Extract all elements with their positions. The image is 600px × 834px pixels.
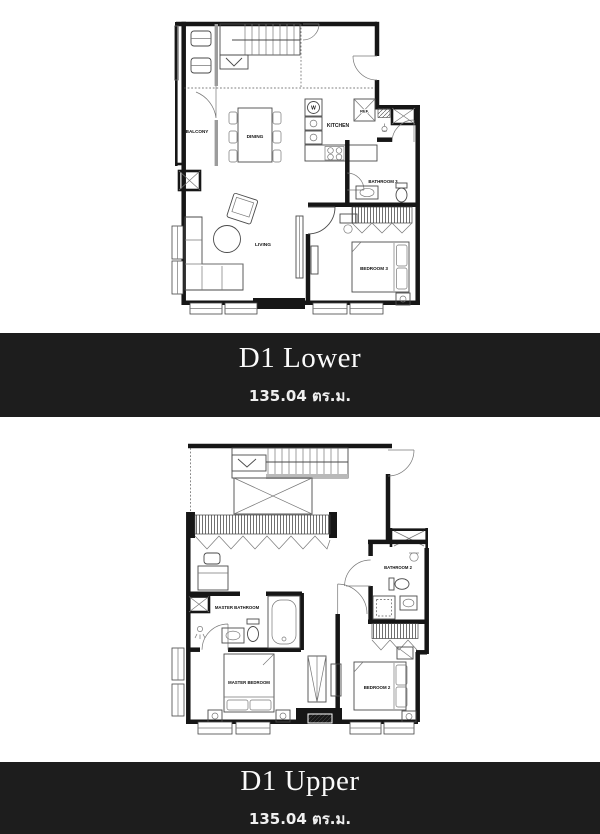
sink [222,628,244,643]
balcony-glass-wall [215,24,218,86]
banner-lower: D1 Lower 135.04 ตร.ม. [0,333,600,417]
living: LIVING [179,171,303,290]
master-bedroom-label: MASTER BEDROOM [228,680,270,685]
wardrobe-hangers [195,536,330,549]
desk-chair [344,225,352,233]
landing-door [388,450,414,476]
pillow [396,687,407,707]
kitchen-door [353,56,377,80]
floorplan-lower: BALCONY DINING W [165,10,427,322]
entry-threshold [378,109,390,118]
kitchen-sink [305,117,322,130]
coffee-table [214,226,241,253]
toilet [247,619,259,624]
stair-direction-arrow [226,58,242,66]
washer-label: W [311,106,316,112]
master-bathroom: MASTER BATHROOM [188,593,302,650]
pillow [397,245,408,266]
dining-label: DINING [247,134,264,140]
pillow [227,700,248,710]
plan-area: 135.04 ตร.ม. [249,807,351,831]
banner-upper: D1 Upper 135.04 ตร.ม. [0,762,600,834]
kitchen-label: KITCHEN [327,123,350,129]
bedroom3: BEDROOM 3 [308,207,412,305]
ref-label: REF. [360,109,369,114]
bathtub [268,596,300,648]
bedroom2-label: BEDROOM 2 [364,685,391,690]
wardrobe [352,207,412,223]
shower-icon [197,626,202,631]
living-label: LIVING [255,242,271,248]
wardrobe [372,624,418,639]
plan-title: D1 Lower [239,342,361,375]
master-bathroom-label: MASTER BATHROOM [215,605,260,610]
sink [400,596,417,610]
pillow [396,665,407,685]
pillow [250,700,271,710]
washer-icon [410,553,418,561]
balcony-label: BALCONY [186,129,209,134]
bedroom3-label: BEDROOM 3 [360,266,388,271]
brochure-page: BALCONY DINING W [0,0,600,834]
outer-walls [176,22,420,305]
balcony: BALCONY [174,24,218,166]
bathroom2: BATHROOM 2 [345,542,427,624]
master-wardrobe [188,512,337,549]
pillow [397,268,408,289]
bathroom3-label: BATHROOM 3 [368,179,398,184]
bathroom3: BATHROOM 3 [308,140,418,205]
wardrobe-hangers [372,640,417,650]
bedroom2-door [338,584,367,614]
plan-area: 135.04 ตร.ม. [249,384,351,408]
outer-walls [186,446,427,722]
desk [198,566,228,590]
armchair [227,193,259,225]
entry-corridor [378,108,415,142]
balcony-door [196,86,216,118]
plan-title: D1 Upper [240,765,359,798]
bathroom2-label: BATHROOM 2 [384,565,413,570]
toilet [396,183,407,188]
stair-door [303,24,319,40]
floorplan-upper: MASTER BATHROOM BATHROOM 2 [165,432,433,744]
bathroom2-door [345,560,371,586]
dining-set: DINING [229,108,281,162]
wardrobe-hangers [352,223,412,233]
dresser [311,246,318,274]
toilet [389,578,394,590]
stair-direction-arrow [238,459,256,467]
desk-chair [204,553,220,564]
bedroom2: BEDROOM 2 [354,624,418,723]
stairs [184,24,375,88]
hall [296,584,367,723]
desk-area [198,553,228,590]
balcony-threshold [308,714,332,723]
stairs [232,448,348,514]
bedroom3-door [308,207,335,234]
kitchen: W REF. KITCHEN [305,56,377,161]
